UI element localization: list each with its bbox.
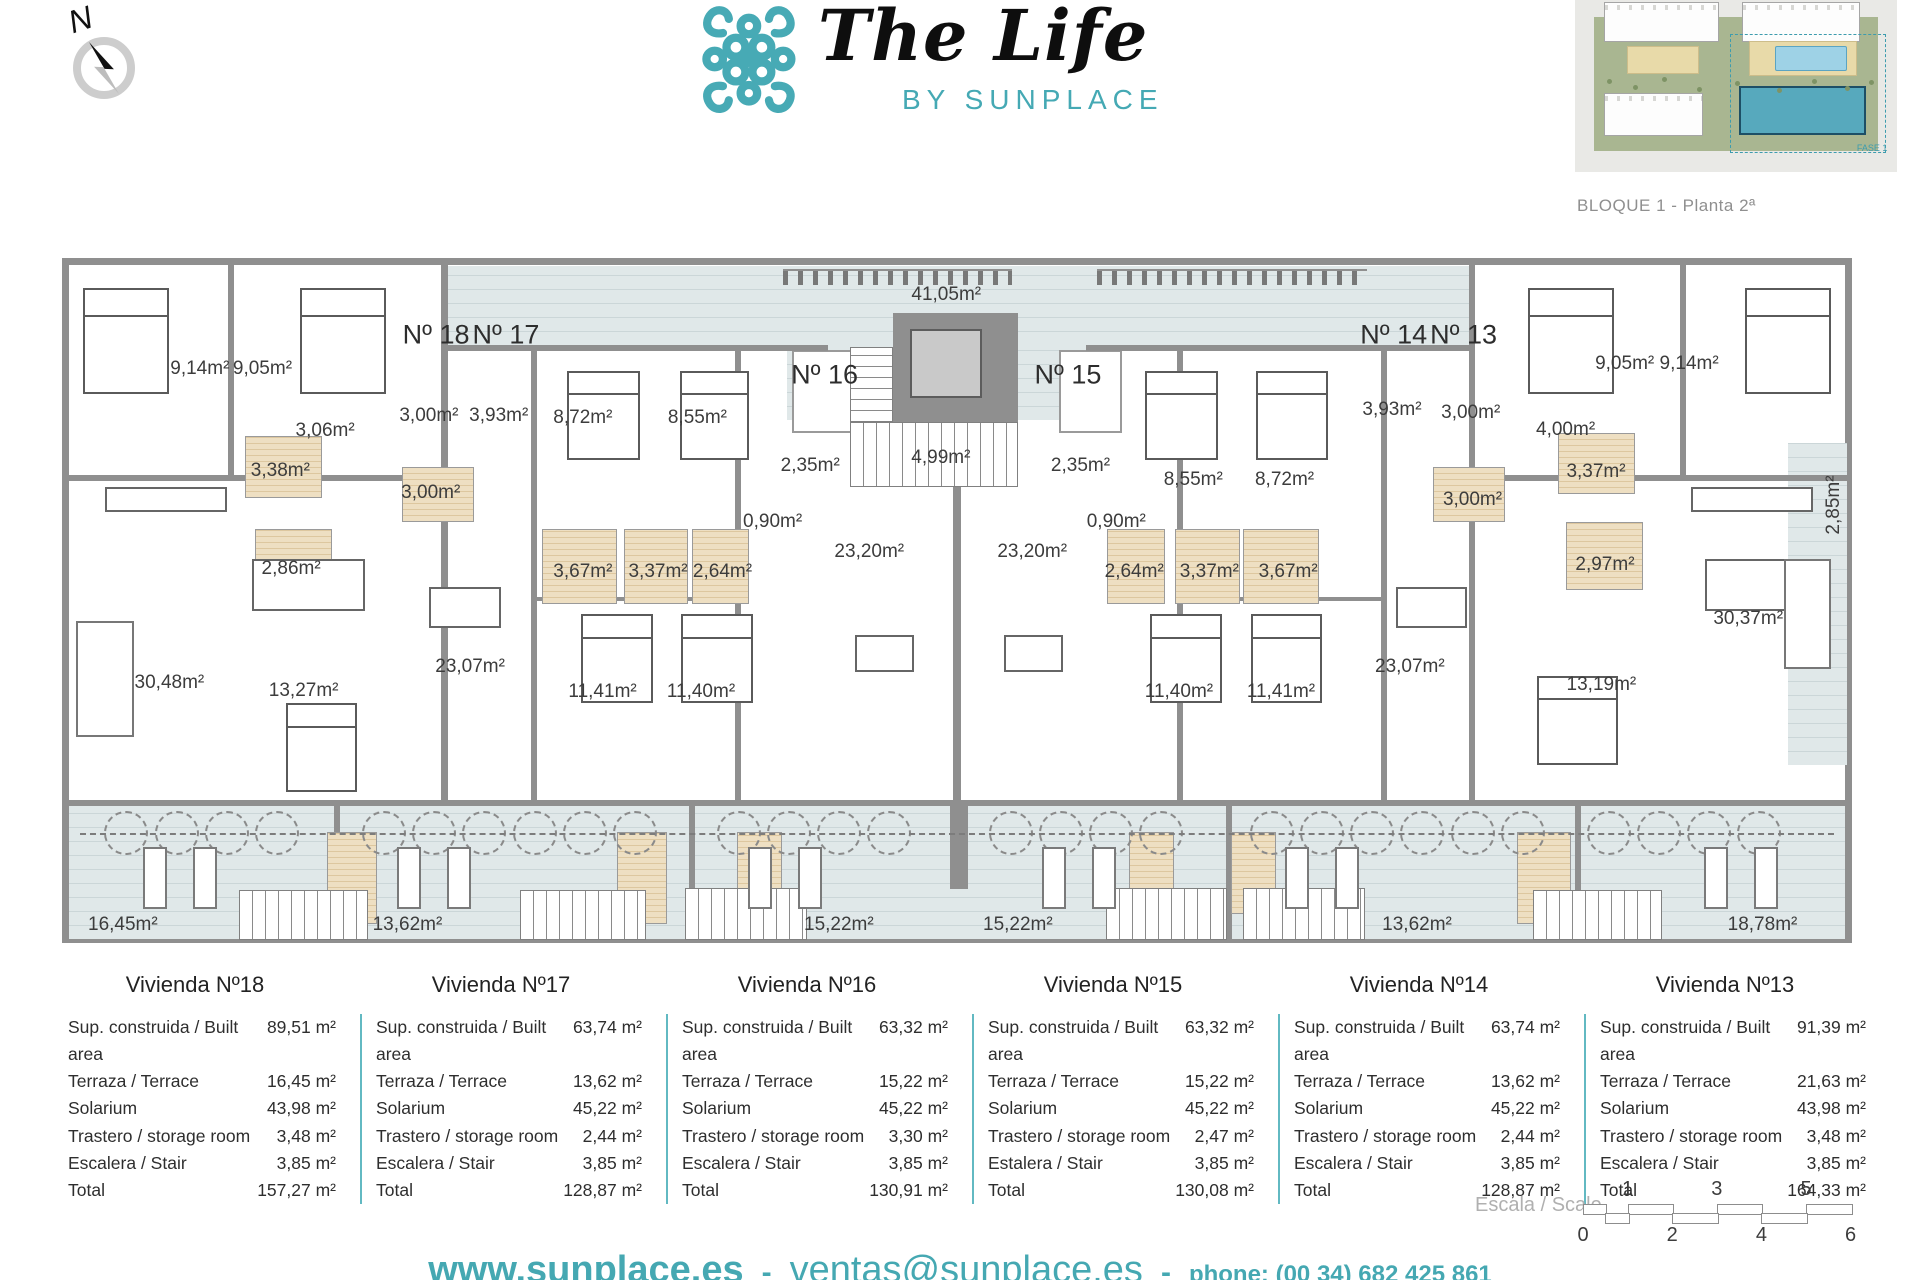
room-area-label: 3,38m² (251, 460, 310, 482)
scale-segment (1717, 1204, 1764, 1215)
spec-value: 3,85 m² (1807, 1150, 1866, 1177)
room-area-label: 9,14m² (1660, 353, 1719, 375)
sofa-icon (1784, 559, 1831, 669)
unit-table: Vivienda Nº15Sup. construida / Built are… (958, 972, 1264, 1204)
dining-table-icon (1004, 635, 1063, 673)
minimap-phase-boundary (1730, 34, 1887, 153)
unit-table-title: Vivienda Nº15 (972, 972, 1254, 998)
scale-number: 3 (1711, 1178, 1722, 1201)
spec-label: Escalera / Stair (68, 1150, 277, 1177)
scale-segment (1583, 1204, 1607, 1215)
compass-north-icon: N (46, 2, 156, 122)
bed-icon (1528, 288, 1614, 394)
plan-wall (953, 443, 960, 800)
spec-value: 130,91 m² (869, 1177, 948, 1204)
plan-wall (62, 800, 1852, 806)
dining-table-icon (855, 635, 914, 673)
spec-label: Solarium (988, 1095, 1185, 1122)
room-area-label: 4,00m² (1536, 419, 1595, 441)
spec-value: 63,32 m² (879, 1014, 948, 1068)
unit-table-rows: Sup. construida / Built area63,32 m²Terr… (972, 1014, 1254, 1204)
room-area-label: 2,64m² (693, 561, 752, 583)
spec-value: 45,22 m² (1491, 1095, 1560, 1122)
spec-label: Trastero / storage room (1600, 1123, 1807, 1150)
spec-value: 63,32 m² (1185, 1014, 1254, 1068)
unit-table: Vivienda Nº17Sup. construida / Built are… (346, 972, 652, 1204)
spec-value: 3,85 m² (583, 1150, 642, 1177)
room-area-label: 15,22m² (804, 914, 874, 936)
room-area-label: 8,55m² (1164, 469, 1223, 491)
unit-table-row: Total130,91 m² (682, 1177, 948, 1204)
room-area-label: 11,41m² (568, 681, 636, 703)
plan-wall (950, 800, 968, 889)
room-area-label: 4,99m² (911, 447, 970, 469)
spec-label: Escalera / Stair (1294, 1150, 1501, 1177)
spec-value: 63,74 m² (1491, 1014, 1560, 1068)
unit-table-row: Total128,87 m² (376, 1177, 642, 1204)
spec-label: Total (682, 1177, 869, 1204)
spec-value: 63,74 m² (573, 1014, 642, 1068)
unit-table-row: Escalera / Stair3,85 m² (1600, 1150, 1866, 1177)
spec-value: 45,22 m² (879, 1095, 948, 1122)
spec-label: Solarium (376, 1095, 573, 1122)
spec-value: 89,51 m² (267, 1014, 336, 1068)
spec-value: 43,98 m² (1797, 1095, 1866, 1122)
spec-value: 45,22 m² (1185, 1095, 1254, 1122)
spec-value: 2,44 m² (1501, 1123, 1560, 1150)
plan-wall (1469, 475, 1852, 481)
spec-value: 3,85 m² (277, 1150, 336, 1177)
room-area-label: 41,05m² (911, 284, 981, 306)
room-area-label: 23,07m² (435, 656, 505, 678)
spec-label: Solarium (682, 1095, 879, 1122)
room-area-label: 18,78m² (1728, 914, 1798, 936)
room-area-label: 11,40m² (667, 681, 735, 703)
minimap-building (1604, 93, 1703, 136)
unit-table-row: Total130,08 m² (988, 1177, 1254, 1204)
unit-table-row: Escalera / Stair3,85 m² (1294, 1150, 1560, 1177)
spec-label: Trastero / storage room (376, 1123, 583, 1150)
room-area-label: 2,64m² (1105, 561, 1164, 583)
room-area-label: 0,90m² (1087, 511, 1146, 533)
unit-table-row: Solarium45,22 m² (988, 1095, 1254, 1122)
minimap-road (1575, 0, 1594, 172)
spec-value: 13,62 m² (573, 1068, 642, 1095)
unit-table-row: Terraza / Terrace13,62 m² (1294, 1068, 1560, 1095)
sun-lounger-icon (1754, 847, 1778, 909)
brand-title: The Life (818, 0, 1148, 77)
footer-phone: phone: (00 34) 682 425 861 (1189, 1261, 1492, 1280)
terrace-dashed-line (80, 833, 1834, 835)
bed-icon (286, 703, 358, 792)
spec-label: Terraza / Terrace (988, 1068, 1185, 1095)
room-area-label: 9,05m² (233, 358, 292, 380)
spec-label: Terraza / Terrace (68, 1068, 267, 1095)
scale-number: 6 (1845, 1224, 1856, 1247)
unit-table-title: Vivienda Nº18 (54, 972, 336, 998)
room-area-label: 3,37m² (1180, 561, 1239, 583)
unit-table-row: Trastero / storage room3,48 m² (1600, 1123, 1866, 1150)
spec-label: Escalera / Stair (376, 1150, 583, 1177)
unit-table-rows: Sup. construida / Built area63,74 m²Terr… (1278, 1014, 1560, 1204)
room-area-label: 3,93m² (469, 405, 528, 427)
sun-lounger-icon (1042, 847, 1066, 909)
footer-email-link[interactable]: ventas@sunplace.es (790, 1249, 1143, 1280)
room-area-label: 0,90m² (743, 511, 802, 533)
room-area-label: 13,62m² (373, 914, 443, 936)
unit-tables: Vivienda Nº18Sup. construida / Built are… (40, 972, 1876, 1204)
room-area-label: 2,97m² (1575, 554, 1634, 576)
room-area-label: 13,19m² (1567, 674, 1637, 696)
scale-number: 2 (1667, 1224, 1678, 1247)
unit-table-row: Terraza / Terrace15,22 m² (682, 1068, 948, 1095)
room-area-label: 23,20m² (834, 541, 904, 563)
unit-table-row: Terraza / Terrace16,45 m² (68, 1068, 336, 1095)
brand-subtitle: BY SUNPLACE (902, 84, 1164, 116)
spec-label: Trastero / storage room (682, 1123, 889, 1150)
terrace-stair (520, 890, 645, 941)
dining-table-icon (429, 587, 501, 628)
unit-table-row: Solarium45,22 m² (376, 1095, 642, 1122)
sun-lounger-icon (1704, 847, 1728, 909)
unit-table-rows: Sup. construida / Built area63,32 m²Terr… (666, 1014, 948, 1204)
room-area-label: 11,40m² (1145, 681, 1213, 703)
spec-value: 45,22 m² (573, 1095, 642, 1122)
room-area-label: 3,00m² (1443, 489, 1502, 511)
room-area-label: 2,35m² (781, 455, 840, 477)
bed-icon (1256, 371, 1328, 460)
spec-value: 21,63 m² (1797, 1068, 1866, 1095)
unit-table-row: Terraza / Terrace15,22 m² (988, 1068, 1254, 1095)
unit-table-row: Trastero / storage room2,47 m² (988, 1123, 1254, 1150)
unit-table-row: Trastero / storage room2,44 m² (376, 1123, 642, 1150)
unit-table: Vivienda Nº13Sup. construida / Built are… (1570, 972, 1876, 1204)
compass-n-label: N (64, 2, 98, 40)
room-area-label: 2,85m² (1823, 475, 1845, 534)
room-area-label: 2,35m² (1051, 455, 1110, 477)
room-area-label: 3,93m² (1362, 399, 1421, 421)
spec-label: Escalera / Stair (682, 1150, 889, 1177)
unit-table-row: Terraza / Terrace13,62 m² (376, 1068, 642, 1095)
scale-number: 5 (1800, 1178, 1811, 1201)
spec-value: 2,47 m² (1195, 1123, 1254, 1150)
room-area-label: 8,72m² (1255, 469, 1314, 491)
footer-separator: - (762, 1256, 772, 1280)
scale-number: 0 (1577, 1224, 1588, 1247)
unit-table-title: Vivienda Nº13 (1584, 972, 1866, 998)
unit-table-title: Vivienda Nº14 (1278, 972, 1560, 998)
elevator (910, 329, 982, 398)
spec-value: 16,45 m² (267, 1068, 336, 1095)
kitchen-counter-icon (1691, 487, 1813, 512)
spec-label: Total (376, 1177, 563, 1204)
room-area-label: 8,72m² (553, 407, 612, 429)
spec-value: 3,30 m² (889, 1123, 948, 1150)
spec-value: 15,22 m² (879, 1068, 948, 1095)
unit-table-row: Solarium43,98 m² (1600, 1095, 1866, 1122)
terrace-stair (239, 890, 368, 941)
footer-separator: - (1161, 1256, 1171, 1280)
unit-table-row: Trastero / storage room3,30 m² (682, 1123, 948, 1150)
unit-table: Vivienda Nº14Sup. construida / Built are… (1264, 972, 1570, 1204)
room-area-label: 3,00m² (401, 482, 460, 504)
room-area-label: 30,48m² (135, 672, 205, 694)
scale-segment (1806, 1204, 1853, 1215)
spec-value: 3,85 m² (1501, 1150, 1560, 1177)
room-area-label: 3,06m² (296, 420, 355, 442)
terrace-stair (685, 888, 807, 940)
minimap-building (1604, 2, 1719, 42)
spec-label: Solarium (1294, 1095, 1491, 1122)
spec-value: 13,62 m² (1491, 1068, 1560, 1095)
room-area-label: 13,27m² (269, 680, 339, 702)
room-area-label: 11,41m² (1247, 681, 1315, 703)
sun-lounger-icon (447, 847, 471, 909)
room-area-label: 3,00m² (399, 405, 458, 427)
room-area-label: 13,62m² (1382, 914, 1452, 936)
spec-label: Total (1294, 1177, 1481, 1204)
unit-table-row: Sup. construida / Built area63,32 m² (988, 1014, 1254, 1068)
bed-icon (1145, 371, 1218, 460)
spec-label: Estalera / Stair (988, 1150, 1195, 1177)
unit-table-row: Terraza / Terrace21,63 m² (1600, 1068, 1866, 1095)
sun-lounger-icon (1335, 847, 1359, 909)
apartment-number-label: Nº 17 (472, 319, 539, 350)
room-area-label: 16,45m² (88, 914, 158, 936)
unit-table: Vivienda Nº18Sup. construida / Built are… (40, 972, 346, 1204)
spec-value: 130,08 m² (1175, 1177, 1254, 1204)
spec-value: 3,48 m² (277, 1123, 336, 1150)
bed-icon (83, 288, 169, 394)
block-floor-label: BLOQUE 1 - Planta 2ª (1577, 196, 1756, 216)
spec-label: Total (68, 1177, 257, 1204)
footer-website-link[interactable]: www.sunplace.es (428, 1249, 743, 1280)
plan-sheet: N The Life BY SUNPLACE (0, 0, 1920, 1280)
balcony-railing (783, 269, 1012, 285)
unit-table-row: Solarium45,22 m² (682, 1095, 948, 1122)
spec-value: 128,87 m² (563, 1177, 642, 1204)
spec-label: Trastero / storage room (1294, 1123, 1501, 1150)
unit-table-row: Sup. construida / Built area63,32 m² (682, 1014, 948, 1068)
sun-lounger-icon (798, 847, 822, 909)
unit-table-title: Vivienda Nº17 (360, 972, 642, 998)
sun-lounger-icon (397, 847, 421, 909)
unit-table-row: Total157,27 m² (68, 1177, 336, 1204)
room-area-label: 30,37m² (1713, 608, 1783, 630)
unit-table-row: Escalera / Stair3,85 m² (68, 1150, 336, 1177)
spec-label: Sup. construida / Built area (1294, 1014, 1491, 1068)
spec-label: Sup. construida / Built area (376, 1014, 573, 1068)
sun-lounger-icon (748, 847, 772, 909)
apartment-number-label: Nº 13 (1430, 319, 1497, 350)
spec-label: Trastero / storage room (988, 1123, 1195, 1150)
apartment-number-label: Nº 15 (1035, 360, 1102, 391)
scale-segment (1628, 1204, 1675, 1215)
spec-value: 3,48 m² (1807, 1123, 1866, 1150)
room-area-label: 23,20m² (997, 541, 1067, 563)
scale-segment (1761, 1213, 1808, 1224)
room-area-label: 15,22m² (983, 914, 1053, 936)
scale-bar: Escala / Scale 1350246 (1475, 1178, 1905, 1242)
scale-number: 4 (1756, 1224, 1767, 1247)
spec-value: 3,85 m² (1195, 1150, 1254, 1177)
apartment-number-label: Nº 18 (403, 319, 470, 350)
spec-label: Solarium (1600, 1095, 1797, 1122)
unit-table-row: Escalera / Stair3,85 m² (376, 1150, 642, 1177)
site-plan-minimap: FASE 1 (1575, 0, 1897, 172)
sofa-icon (76, 621, 133, 737)
room-area-label: 3,00m² (1441, 402, 1500, 424)
spec-value: 43,98 m² (267, 1095, 336, 1122)
bed-icon (1745, 288, 1831, 394)
sun-lounger-icon (1285, 847, 1309, 909)
spec-label: Terraza / Terrace (1600, 1068, 1797, 1095)
minimap-road (1575, 151, 1897, 172)
minimap-deck (1627, 46, 1700, 74)
kitchen-counter-icon (105, 487, 227, 512)
balcony-railing (1097, 269, 1367, 285)
bed-icon (300, 288, 386, 394)
room-area-label: 3,67m² (553, 561, 612, 583)
spec-value: 2,44 m² (583, 1123, 642, 1150)
unit-table-row: Trastero / storage room3,48 m² (68, 1123, 336, 1150)
unit-table-row: Sup. construida / Built area89,51 m² (68, 1014, 336, 1068)
scale-segment (1672, 1213, 1719, 1224)
unit-table-rows: Sup. construida / Built area63,74 m²Terr… (360, 1014, 642, 1204)
unit-table-row: Trastero / storage room2,44 m² (1294, 1123, 1560, 1150)
scale-segment (1605, 1213, 1629, 1224)
unit-table-title: Vivienda Nº16 (666, 972, 948, 998)
room-area-label: 3,37m² (1566, 461, 1625, 483)
spec-value: 157,27 m² (257, 1177, 336, 1204)
spec-label: Total (988, 1177, 1175, 1204)
unit-table-row: Sup. construida / Built area63,74 m² (376, 1014, 642, 1068)
room-area-label: 8,55m² (668, 407, 727, 429)
spec-value: 91,39 m² (1797, 1014, 1866, 1068)
terrace-stair (1533, 890, 1662, 941)
unit-table-row: Sup. construida / Built area91,39 m² (1600, 1014, 1866, 1068)
spec-label: Sup. construida / Built area (682, 1014, 879, 1068)
unit-table-rows: Sup. construida / Built area89,51 m²Terr… (54, 1014, 336, 1204)
spec-value: 15,22 m² (1185, 1068, 1254, 1095)
footer-contact-bar: www.sunplace.es - ventas@sunplace.es - p… (0, 1249, 1920, 1280)
spec-label: Terraza / Terrace (1294, 1068, 1491, 1095)
apartment-number-label: Nº 14 (1360, 319, 1427, 350)
unit-table-row: Estalera / Stair3,85 m² (988, 1150, 1254, 1177)
unit-table-row: Escalera / Stair3,85 m² (682, 1150, 948, 1177)
spec-label: Terraza / Terrace (682, 1068, 879, 1095)
unit-table-row: Sup. construida / Built area63,74 m² (1294, 1014, 1560, 1068)
sun-lounger-icon (193, 847, 217, 909)
spec-label: Sup. construida / Built area (988, 1014, 1185, 1068)
floor-plan: Nº 18Nº 17Nº 16Nº 15Nº 14Nº 1341,05m²9,1… (62, 258, 1852, 943)
spec-label: Terraza / Terrace (376, 1068, 573, 1095)
sun-lounger-icon (143, 847, 167, 909)
dining-table-icon (1396, 587, 1468, 628)
spec-label: Trastero / storage room (68, 1123, 277, 1150)
room-area-label: 2,86m² (262, 558, 321, 580)
terrace-stair (1106, 888, 1228, 940)
unit-table-rows: Sup. construida / Built area91,39 m²Terr… (1584, 1014, 1866, 1204)
unit-table: Vivienda Nº16Sup. construida / Built are… (652, 972, 958, 1204)
minimap-fase-label: FASE 1 (1857, 143, 1888, 153)
unit-table-row: Solarium43,98 m² (68, 1095, 336, 1122)
spec-value: 3,85 m² (889, 1150, 948, 1177)
plan-wall (531, 345, 537, 800)
room-area-label: 3,67m² (1259, 561, 1318, 583)
spec-label: Sup. construida / Built area (1600, 1014, 1797, 1068)
spec-label: Sup. construida / Built area (68, 1014, 267, 1068)
scale-number: 1 (1622, 1178, 1633, 1201)
room-area-label: 9,05m² (1595, 353, 1654, 375)
spec-label: Solarium (68, 1095, 267, 1122)
room-area-label: 3,37m² (628, 561, 687, 583)
room-area-label: 23,07m² (1375, 656, 1445, 678)
apartment-number-label: Nº 16 (791, 360, 858, 391)
unit-table-row: Solarium45,22 m² (1294, 1095, 1560, 1122)
brand-knot-icon (682, 0, 804, 118)
spec-label: Escalera / Stair (1600, 1150, 1807, 1177)
sun-lounger-icon (1092, 847, 1116, 909)
room-area-label: 9,14m² (170, 358, 229, 380)
